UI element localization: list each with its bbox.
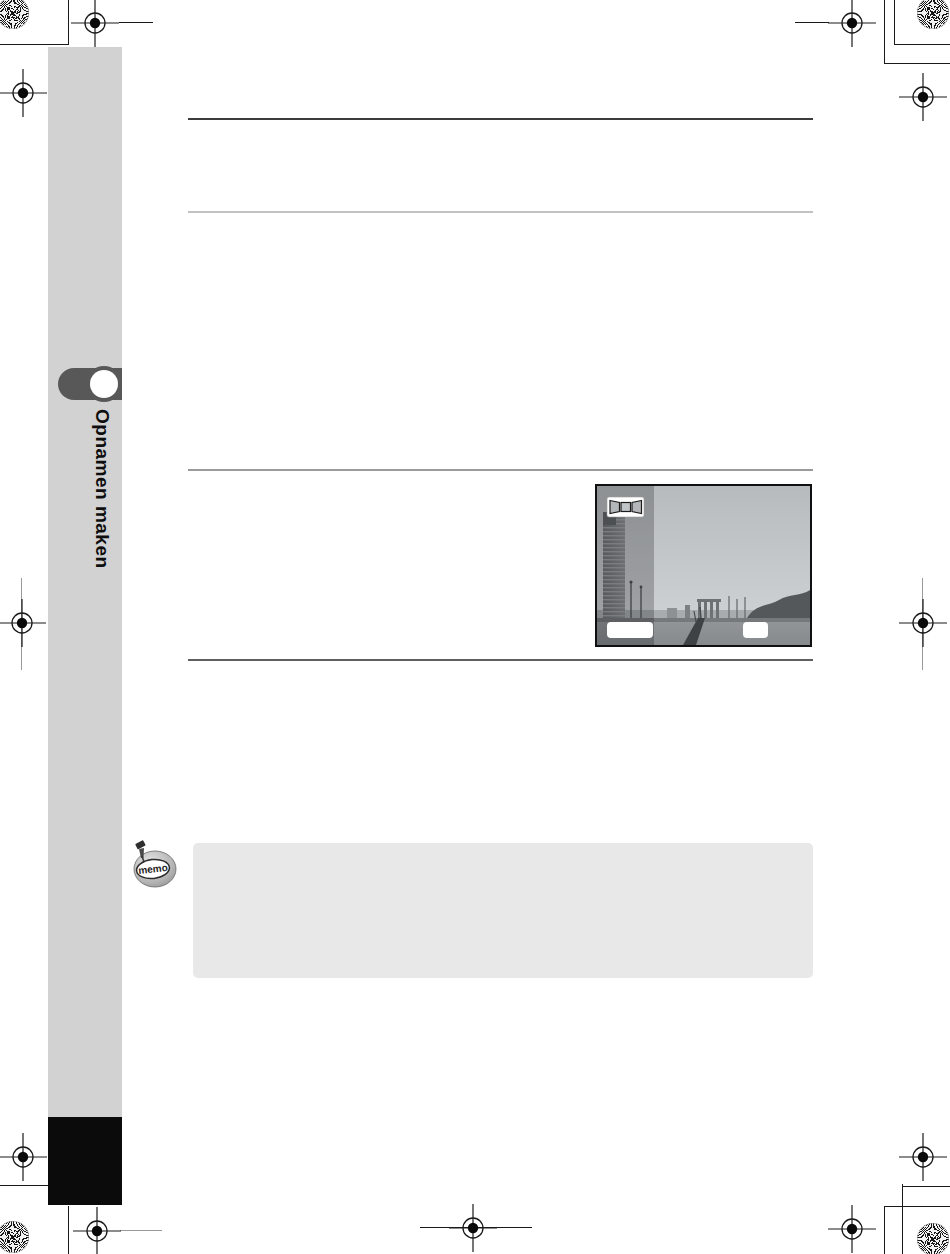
chapter-tab-dot <box>90 370 118 398</box>
crop-mark <box>884 1206 885 1254</box>
section-divider <box>188 469 813 471</box>
registration-mark-icon <box>449 1204 497 1252</box>
section-divider <box>188 659 813 661</box>
color-calibration-mark-icon <box>0 1221 29 1253</box>
section-divider <box>188 118 813 120</box>
color-calibration-mark-icon <box>917 1223 949 1254</box>
crop-mark <box>884 0 885 64</box>
registration-mark-icon <box>73 1207 121 1254</box>
registration-mark-icon <box>828 0 876 47</box>
section-divider <box>188 211 813 213</box>
crop-mark <box>0 1185 48 1186</box>
crop-mark <box>68 1206 69 1254</box>
registration-mark-icon <box>899 599 947 647</box>
registration-mark-icon <box>828 1205 876 1253</box>
memo-note-box <box>193 843 813 978</box>
memo-icon: memo <box>126 840 182 890</box>
registration-mark-line <box>119 22 153 23</box>
color-calibration-mark-icon <box>0 0 29 29</box>
crop-mark <box>894 44 950 45</box>
crop-mark <box>68 0 69 45</box>
manual-page: Opnamen maken <box>0 0 950 1254</box>
crop-mark <box>902 1184 903 1254</box>
crop-mark <box>0 44 69 45</box>
panorama-scene-image <box>597 486 810 645</box>
crop-mark <box>884 1206 950 1207</box>
color-calibration-mark-icon <box>917 0 949 29</box>
registration-mark-icon <box>899 1133 947 1181</box>
page-footer-block <box>48 1117 122 1205</box>
crop-mark <box>884 63 950 64</box>
panorama-mode-icon <box>607 497 644 517</box>
registration-mark-line <box>120 1230 162 1231</box>
registration-mark-icon <box>0 69 47 117</box>
crop-mark <box>894 0 895 45</box>
figure-button-left <box>607 622 653 638</box>
registration-mark-icon <box>899 73 947 121</box>
camera-lcd-figure <box>595 484 812 647</box>
registration-mark-icon <box>71 0 119 47</box>
figure-button-right <box>743 622 768 638</box>
registration-mark-line <box>795 22 829 23</box>
registration-mark-icon <box>0 599 46 647</box>
registration-mark-icon <box>0 1133 47 1181</box>
sidebar-chapter-label: Opnamen maken <box>91 409 113 609</box>
crop-mark <box>902 1186 950 1187</box>
